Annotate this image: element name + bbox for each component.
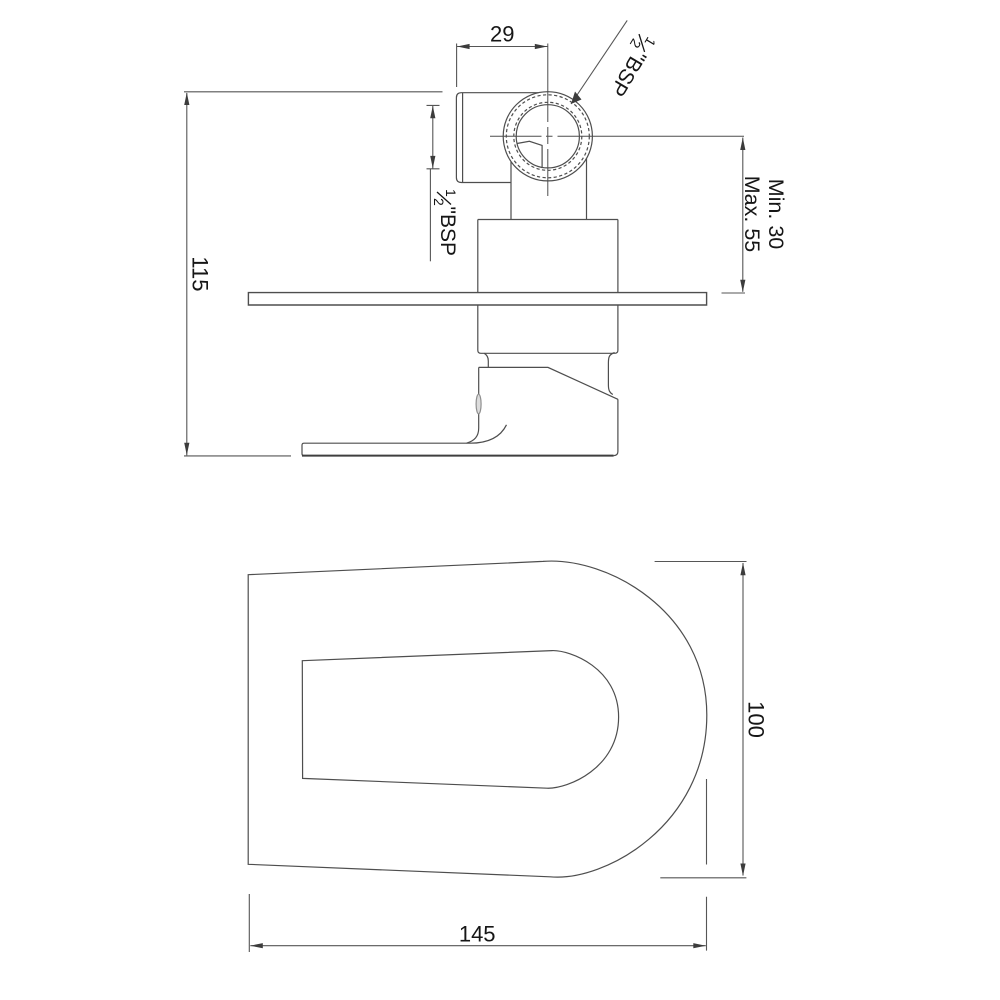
svg-text:"BSP: "BSP bbox=[605, 46, 650, 100]
svg-text:29: 29 bbox=[490, 22, 514, 47]
svg-text:"BSP: "BSP bbox=[436, 207, 459, 256]
svg-text:1: 1 bbox=[641, 34, 659, 49]
svg-text:115: 115 bbox=[188, 256, 213, 291]
svg-text:1: 1 bbox=[443, 189, 459, 197]
svg-text:100: 100 bbox=[744, 701, 769, 738]
svg-text:2: 2 bbox=[431, 198, 447, 206]
svg-text:Max. 55: Max. 55 bbox=[740, 176, 764, 253]
svg-text:145: 145 bbox=[459, 922, 496, 947]
svg-text:Min. 30: Min. 30 bbox=[764, 179, 788, 250]
